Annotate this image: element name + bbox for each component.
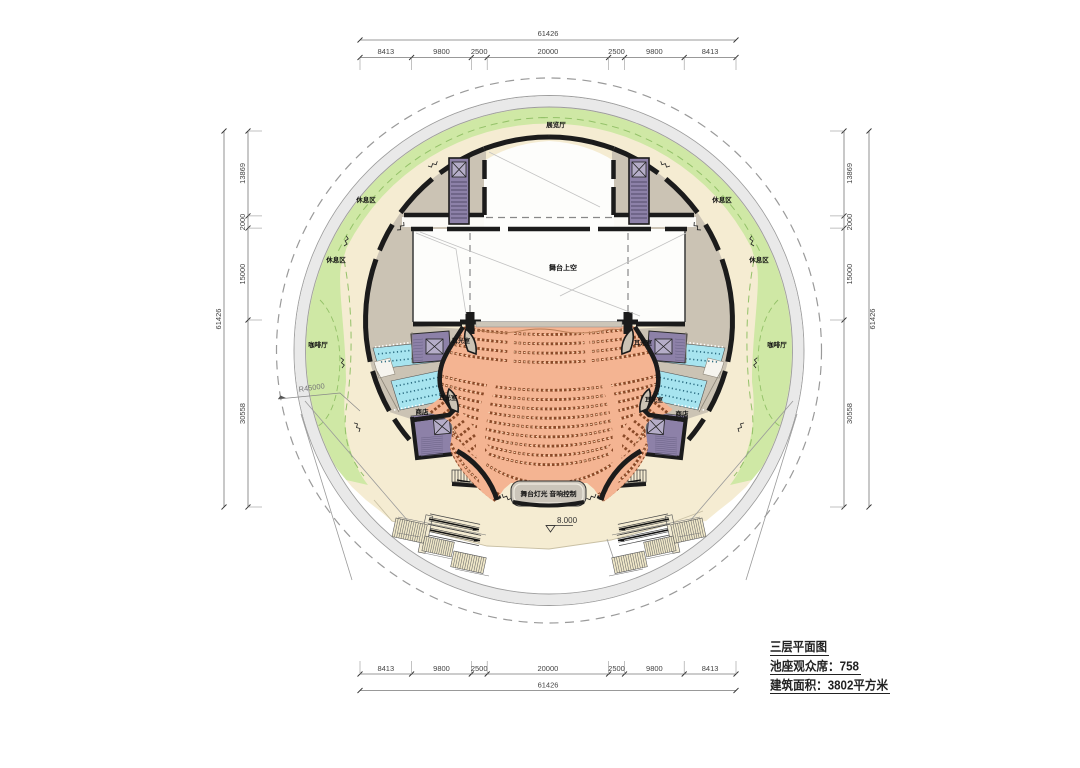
svg-text:9800: 9800 (433, 664, 450, 673)
svg-text:休息区: 休息区 (325, 255, 346, 264)
svg-text:8413: 8413 (702, 664, 719, 673)
svg-text:商店: 商店 (416, 407, 430, 416)
svg-text:20000: 20000 (537, 47, 558, 56)
svg-text:三层平面图: 三层平面图 (770, 640, 827, 654)
svg-text:8413: 8413 (377, 47, 394, 56)
svg-text:2500: 2500 (471, 47, 488, 56)
svg-text:2000: 2000 (845, 214, 854, 231)
svg-text:13869: 13869 (238, 163, 247, 184)
svg-text:舞台上空: 舞台上空 (549, 263, 577, 272)
svg-text:咖啡厅: 咖啡厅 (308, 340, 328, 349)
svg-text:耳光室: 耳光室 (439, 394, 457, 402)
svg-text:61426: 61426 (538, 29, 559, 38)
svg-text:2500: 2500 (608, 47, 625, 56)
svg-text:9800: 9800 (433, 47, 450, 56)
svg-text:30558: 30558 (845, 403, 854, 424)
svg-text:休息区: 休息区 (748, 255, 769, 264)
svg-text:咖啡厅: 咖啡厅 (767, 340, 787, 349)
svg-text:61426: 61426 (214, 309, 223, 330)
svg-text:8413: 8413 (702, 47, 719, 56)
svg-text:61426: 61426 (538, 681, 559, 690)
svg-text:8.000: 8.000 (557, 516, 578, 525)
svg-text:2500: 2500 (608, 664, 625, 673)
svg-text:9800: 9800 (646, 47, 663, 56)
svg-text:20000: 20000 (537, 664, 558, 673)
svg-text:30558: 30558 (238, 403, 247, 424)
svg-text:13869: 13869 (845, 163, 854, 184)
svg-text:15000: 15000 (238, 264, 247, 285)
svg-text:2500: 2500 (471, 664, 488, 673)
svg-text:舞台灯光 音响控制: 舞台灯光 音响控制 (521, 489, 578, 498)
svg-text:商店: 商店 (676, 409, 690, 418)
svg-text:61426: 61426 (868, 309, 877, 330)
svg-text:耳光室: 耳光室 (634, 339, 652, 347)
svg-text:耳光室: 耳光室 (645, 396, 663, 404)
svg-text:耳光室: 耳光室 (452, 337, 470, 345)
svg-text:15000: 15000 (845, 264, 854, 285)
svg-text:休息区: 休息区 (355, 195, 376, 204)
svg-text:2000: 2000 (238, 214, 247, 231)
svg-text:休息区: 休息区 (711, 195, 732, 204)
svg-text:池座观众席：758: 池座观众席：758 (770, 659, 859, 674)
svg-text:9800: 9800 (646, 664, 663, 673)
svg-text:建筑面积：3802平方米: 建筑面积：3802平方米 (770, 678, 888, 693)
svg-text:展览厅: 展览厅 (545, 120, 566, 129)
svg-text:8413: 8413 (377, 664, 394, 673)
